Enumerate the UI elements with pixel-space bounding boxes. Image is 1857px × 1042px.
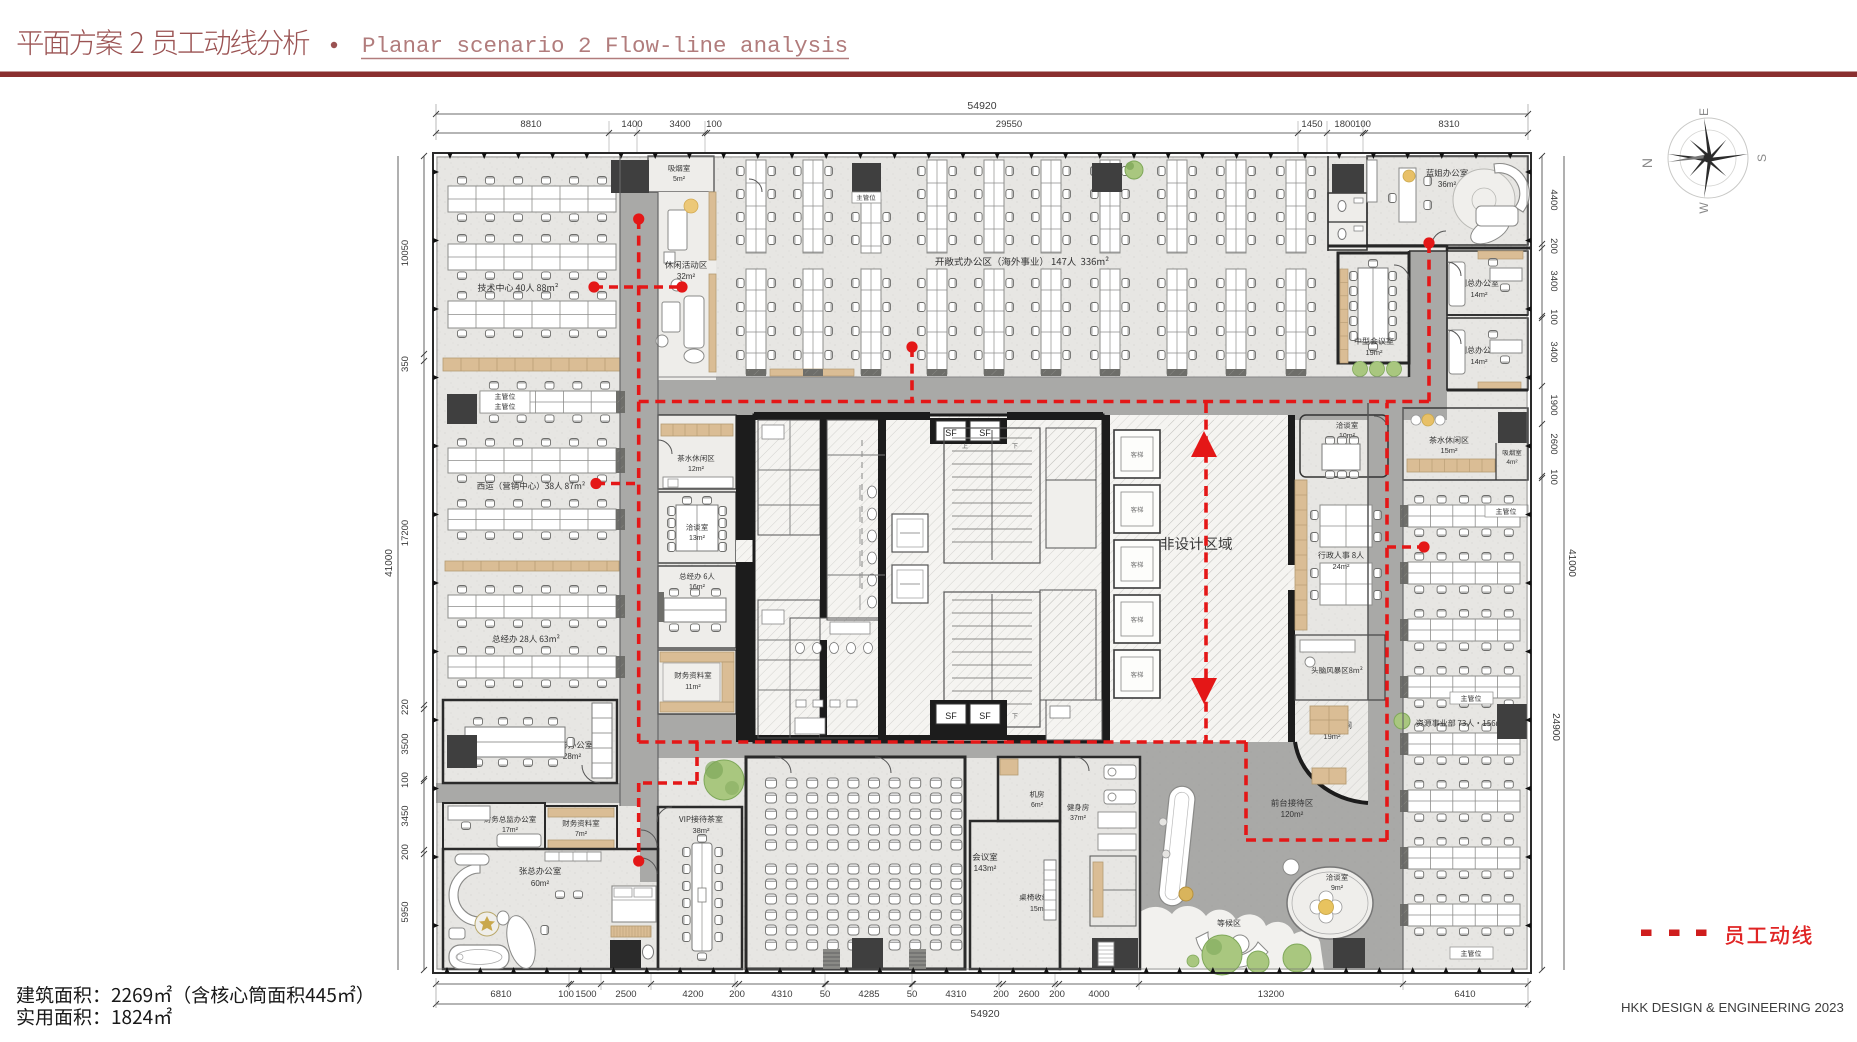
svg-text:14m²: 14m² <box>1470 357 1488 366</box>
svg-text:200: 200 <box>400 844 411 860</box>
svg-text:1400: 1400 <box>621 119 642 130</box>
svg-text:220: 220 <box>400 699 411 715</box>
svg-text:200: 200 <box>1049 989 1065 1000</box>
svg-text:50: 50 <box>820 989 831 1000</box>
svg-text:6810: 6810 <box>490 989 511 1000</box>
svg-text:143m²: 143m² <box>974 864 997 873</box>
svg-text:HKK DESIGN & ENGINEERING 2023: HKK DESIGN & ENGINEERING 2023 <box>1621 1000 1844 1015</box>
svg-text:SF: SF <box>945 711 957 721</box>
svg-text:200: 200 <box>993 989 1009 1000</box>
svg-text:13200: 13200 <box>1258 989 1284 1000</box>
svg-text:2600: 2600 <box>1018 989 1039 1000</box>
svg-text:100: 100 <box>400 772 411 788</box>
svg-text:6410: 6410 <box>1454 989 1475 1000</box>
svg-text:1500: 1500 <box>575 989 596 1000</box>
svg-text:S: S <box>1755 154 1769 162</box>
svg-text:200: 200 <box>1548 238 1559 254</box>
svg-text:19m²: 19m² <box>1365 348 1383 357</box>
svg-text:54920: 54920 <box>967 100 996 112</box>
svg-text:11m²: 11m² <box>685 684 701 691</box>
svg-text:12m²: 12m² <box>688 466 705 473</box>
svg-text:W: W <box>1697 202 1711 214</box>
svg-text:41000: 41000 <box>384 549 395 577</box>
svg-text:3450: 3450 <box>400 805 411 826</box>
svg-text:4400: 4400 <box>1548 189 1559 210</box>
svg-text:37m²: 37m² <box>1070 815 1087 822</box>
svg-text:15m²: 15m² <box>1440 446 1458 455</box>
svg-text:13m²: 13m² <box>689 535 706 542</box>
svg-text:6m²: 6m² <box>1031 802 1044 809</box>
svg-text:4310: 4310 <box>945 989 966 1000</box>
svg-text:8310: 8310 <box>1438 119 1459 130</box>
svg-text:41000: 41000 <box>1566 549 1577 577</box>
svg-text:350: 350 <box>400 356 411 372</box>
svg-text:24900: 24900 <box>1550 713 1561 741</box>
svg-text:60m²: 60m² <box>531 879 550 888</box>
svg-text:100: 100 <box>1548 309 1559 325</box>
svg-text:SF: SF <box>979 711 991 721</box>
svg-text:3400: 3400 <box>1548 270 1559 291</box>
svg-text:50: 50 <box>907 989 918 1000</box>
svg-text:24m²: 24m² <box>1332 562 1350 571</box>
svg-text:2600: 2600 <box>1548 433 1559 454</box>
svg-text:1900: 1900 <box>1548 394 1559 415</box>
svg-text:100: 100 <box>706 119 722 130</box>
svg-text:36m²: 36m² <box>1438 180 1457 189</box>
svg-text:100: 100 <box>1548 469 1559 485</box>
svg-text:4310: 4310 <box>771 989 792 1000</box>
svg-text:3400: 3400 <box>1548 341 1559 362</box>
svg-text:3500: 3500 <box>400 733 411 754</box>
svg-text:14m²: 14m² <box>1470 290 1488 299</box>
svg-text:7m²: 7m² <box>575 831 588 838</box>
svg-text:1450: 1450 <box>1301 119 1322 130</box>
svg-text:100: 100 <box>558 989 574 1000</box>
svg-text:17200: 17200 <box>400 520 411 546</box>
svg-text:SF: SF <box>979 428 991 438</box>
svg-text:100: 100 <box>1355 119 1371 130</box>
svg-text:4285: 4285 <box>858 989 879 1000</box>
svg-text:1800: 1800 <box>1334 119 1355 130</box>
svg-text:10050: 10050 <box>400 240 411 266</box>
svg-text:4m²: 4m² <box>1506 459 1518 466</box>
svg-text:28m²: 28m² <box>563 752 582 761</box>
svg-text:4200: 4200 <box>682 989 703 1000</box>
svg-text:Planar scenario 2 Flow-line an: Planar scenario 2 Flow-line analysis <box>362 33 848 59</box>
svg-text:4000: 4000 <box>1088 989 1109 1000</box>
svg-text:38m²: 38m² <box>692 826 710 835</box>
svg-text:5m²: 5m² <box>673 176 686 183</box>
svg-text:120m²: 120m² <box>1281 810 1304 819</box>
svg-text:N: N <box>1639 158 1655 168</box>
svg-text:29550: 29550 <box>996 119 1022 130</box>
svg-text:2500: 2500 <box>615 989 636 1000</box>
svg-text:9m²: 9m² <box>1331 885 1344 892</box>
svg-text:200: 200 <box>729 989 745 1000</box>
svg-text:17m²: 17m² <box>502 827 519 834</box>
svg-text:3400: 3400 <box>669 119 690 130</box>
svg-text:8810: 8810 <box>520 119 541 130</box>
svg-text:5950: 5950 <box>400 901 411 922</box>
svg-text:54920: 54920 <box>970 1008 999 1020</box>
svg-text:E: E <box>1697 108 1711 116</box>
svg-text:SF: SF <box>945 428 957 438</box>
